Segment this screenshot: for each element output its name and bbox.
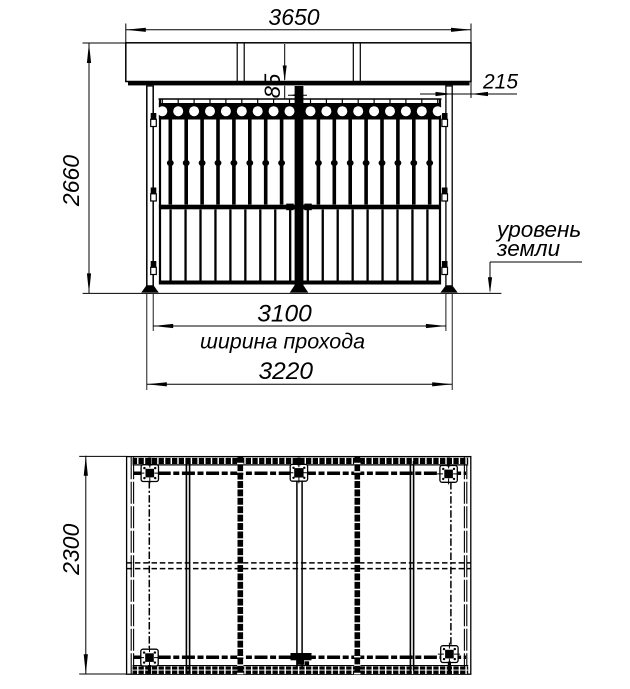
svg-text:2300: 2300	[58, 524, 84, 576]
svg-text:3100: 3100	[257, 301, 312, 328]
svg-text:ширина прохода: ширина прохода	[200, 330, 365, 354]
svg-text:85: 85	[260, 73, 285, 98]
svg-text:215: 215	[482, 71, 518, 94]
svg-text:земли: земли	[496, 236, 561, 261]
svg-text:3650: 3650	[268, 4, 319, 30]
svg-text:2660: 2660	[58, 155, 84, 207]
svg-text:3220: 3220	[258, 358, 313, 385]
